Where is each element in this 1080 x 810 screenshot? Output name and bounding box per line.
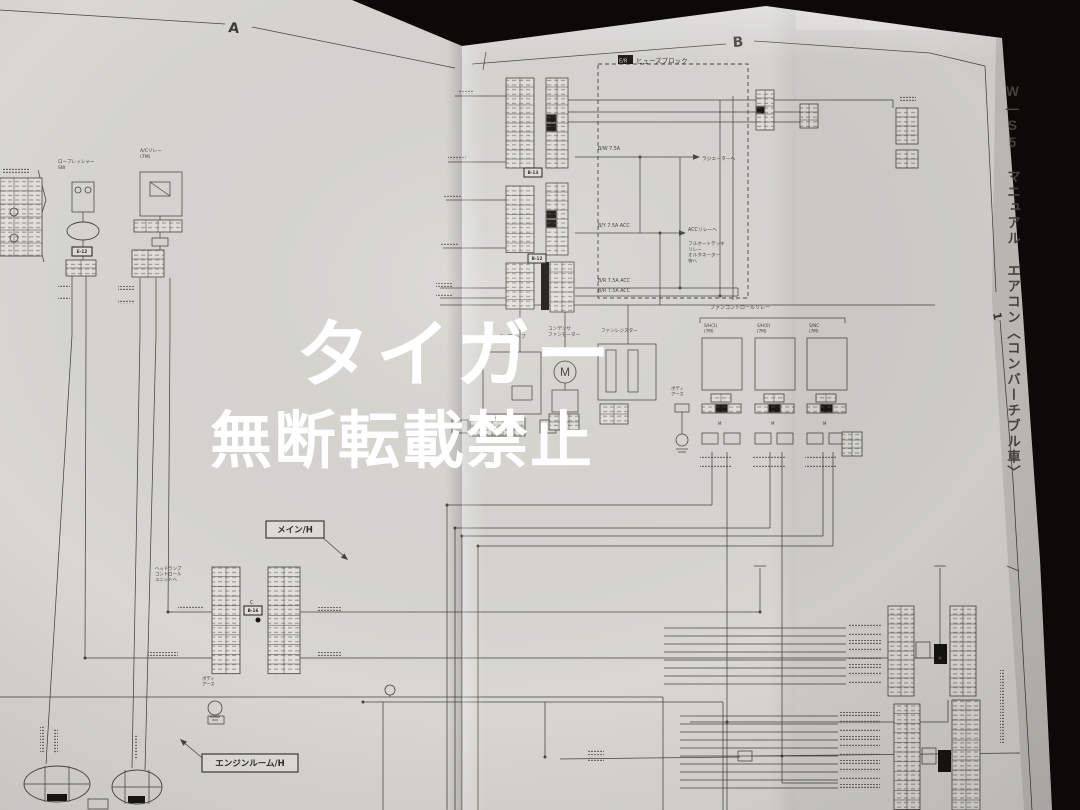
watermark-line-2: 無断転載禁止 <box>210 410 594 472</box>
watermark-line-1: タイガー <box>296 318 616 392</box>
photo-of-wiring-diagram-page: MA/Cリレー(7M)ロープレッシャーSWコンデンサファンモーターファンレジスタ… <box>0 0 1080 810</box>
page-side-title: W―S5 マニュアル エアコン〈コンバーチブル車〉 <box>1002 84 1022 474</box>
